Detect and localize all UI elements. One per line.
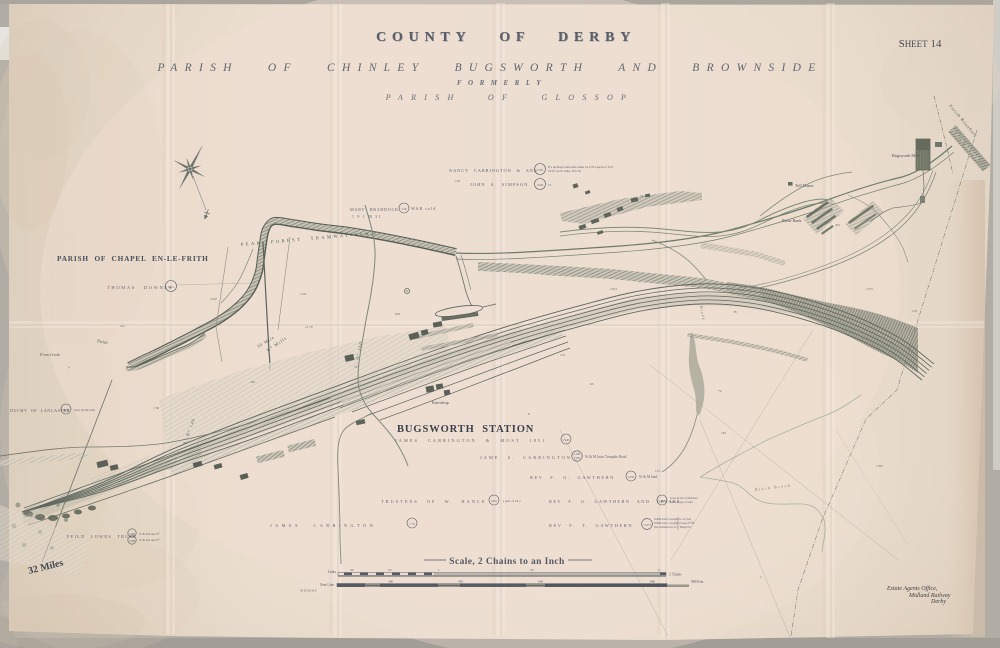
svg-text:113: 113 [655,469,660,473]
svg-text:1461: 1461 [491,499,498,503]
svg-text:TRUSTEES OF W. HANCE: TRUSTEES OF W. HANCE [381,499,487,504]
svg-text:p: p [68,365,70,369]
svg-text:Links: Links [328,570,337,574]
svg-text:From Crook: From Crook [39,352,60,357]
svg-text:JAMES CARRINGTON & MOST 1851: JAMES CARRINGTON & MOST 1851 [395,438,546,443]
svg-text:1 75: 1 75 [409,522,415,526]
svg-text:Knowltop: Knowltop [432,400,449,405]
svg-text:1593: 1593 [876,464,883,468]
svg-text:103 ft won't strike 10 ft 50: 103 ft won't strike 10 ft 50 [548,169,581,173]
svg-text:1566: 1566 [129,532,136,536]
svg-text:4049: 4049 [63,408,70,412]
svg-text:900: 900 [650,580,655,584]
svg-text:river bed & land: river bed & land [74,408,95,412]
svg-text:185: 185 [721,431,726,435]
svg-text:1568: 1568 [129,539,136,543]
svg-text:600: 600 [538,580,543,584]
svg-text:1450: 1450 [628,475,635,479]
svg-text:REV F. G. GAWTHERN: REV F. G. GAWTHERN [530,475,615,480]
svg-text:1547: 1547 [300,292,307,296]
svg-text:Bugsworth Mill: Bugsworth Mill [892,153,919,158]
svg-text:2140: 2140 [563,438,570,442]
svg-text:W & M land: W & M land [639,475,657,479]
svg-text:FEILD LOWES TRUST: FEILD LOWES TRUST [67,534,137,539]
svg-text:also included not to l.: also included not to l. [654,526,678,529]
svg-text:98 a: 98 a [168,285,174,289]
svg-text:66: 66 [640,194,644,198]
svg-text:PARISH OF CHAPEL EN-LE-FRITH: PARISH OF CHAPEL EN-LE-FRITH [57,254,209,263]
svg-text:1610: 1610 [210,297,217,301]
svg-text:BUGSWORTH STATION: BUGSWORTH STATION [397,424,534,435]
svg-text:79: 79 [718,389,722,393]
svg-text:2 Chains: 2 Chains [669,573,682,577]
svg-text:1595: 1595 [537,168,544,172]
svg-text:262: 262 [250,380,255,384]
svg-text:W & M Lane N°: W & M Lane N° [139,532,161,536]
svg-text:103: 103 [912,309,917,313]
svg-text:519: 519 [402,207,407,211]
svg-text:1600: 1600 [537,183,544,187]
svg-text:2: 2 [658,568,660,572]
svg-text:850: 850 [395,312,400,316]
svg-text:70: 70 [418,245,422,249]
svg-text:Derby: Derby [930,599,946,605]
svg-text:PARISH OF GLOSSOP: PARISH OF GLOSSOP [385,93,635,102]
svg-text:W&M Gawt wrought l.: W&M Gawt wrought l. [654,518,681,521]
svg-text:SHEET 14: SHEET 14 [899,38,942,50]
svg-text:REV F. T. GAWTHERN: REV F. T. GAWTHERN [549,523,633,528]
svg-text:THOMAS DOWNES: THOMAS DOWNES [107,285,173,290]
svg-text:o. Gr Soil: o. Gr Soil [680,518,691,521]
svg-text:300: 300 [388,580,393,584]
svg-text:Rosie Bank: Rosie Bank [782,218,802,223]
svg-text:50: 50 [350,568,354,572]
svg-text:Estate Agents Office,: Estate Agents Office, [886,585,938,592]
svg-text:13: 13 [548,183,552,187]
svg-text:W & M Lane N°: W & M Lane N° [139,538,161,542]
svg-text:78: 78 [733,310,737,314]
svg-text:a63: a63 [835,223,840,227]
svg-text:NANCY CARRINGTON & ANR: NANCY CARRINGTON & ANR [449,168,538,173]
svg-text:( part of lot ): ( part of lot ) [503,499,520,503]
svg-text:12 78: 12 78 [305,325,313,329]
svg-text:+1473: +1473 [643,523,652,527]
svg-text:50 30 20 10 0: 50 30 20 10 0 [300,589,317,593]
svg-text:63: 63 [590,382,594,386]
svg-text:FORMERLY: FORMERLY [457,79,547,87]
svg-text:Lessee N°60: Lessee N°60 [680,522,695,525]
svg-text:1: 1 [438,568,440,572]
svg-text:25: 25 [388,568,392,572]
svg-text:8: 8 [528,412,530,416]
svg-text:Scale, 2 Chains to an Inch: Scale, 2 Chains to an Inch [449,557,565,567]
svg-text:Feet Line: Feet Line [320,583,334,587]
svg-text:103: 103 [455,179,460,183]
svg-text:COUNTY OF DERBY: COUNTY OF DERBY [376,30,636,45]
svg-text:1575: 1575 [866,287,873,291]
svg-text:1 9 1 M 31: 1 9 1 M 31 [352,214,382,219]
svg-text:a11: a11 [120,324,125,328]
svg-text:900 Feet: 900 Feet [691,580,703,584]
svg-text:JAME S. CARRINGTON: JAME S. CARRINGTON [480,455,572,460]
svg-text:Mich. Steps of land: Mich. Steps of land [670,500,693,504]
svg-text:1488: 1488 [659,499,666,503]
svg-text:50: 50 [530,568,534,572]
svg-text:W & M Joint Turnpike Road: W & M Joint Turnpike Road [585,455,627,459]
svg-text:Height 9c: Height 9c [680,526,692,529]
svg-text:150: 150 [154,406,159,410]
svg-text:Toll House: Toll House [795,183,814,188]
svg-text:JAMES CARRINGTON: JAMES CARRINGTON [270,523,376,528]
svg-text:1299: 1299 [574,456,581,460]
svg-text:JOHN S. SIMPSON: JOHN S. SIMPSON [470,182,529,187]
svg-text:1023: 1023 [610,287,617,291]
svg-text:W&M Gawt wrought l.: W&M Gawt wrought l. [654,522,681,525]
svg-text:101: 101 [560,353,565,357]
svg-text:450: 450 [458,580,463,584]
svg-text:WAR sold: WAR sold [411,206,436,211]
svg-text:MARY BRADDOCK: MARY BRADDOCK [350,207,399,212]
svg-text:PARISH OF CHINLEY BUGSWORTH AN: PARISH OF CHINLEY BUGSWORTH AND BROWNSID… [156,62,822,74]
